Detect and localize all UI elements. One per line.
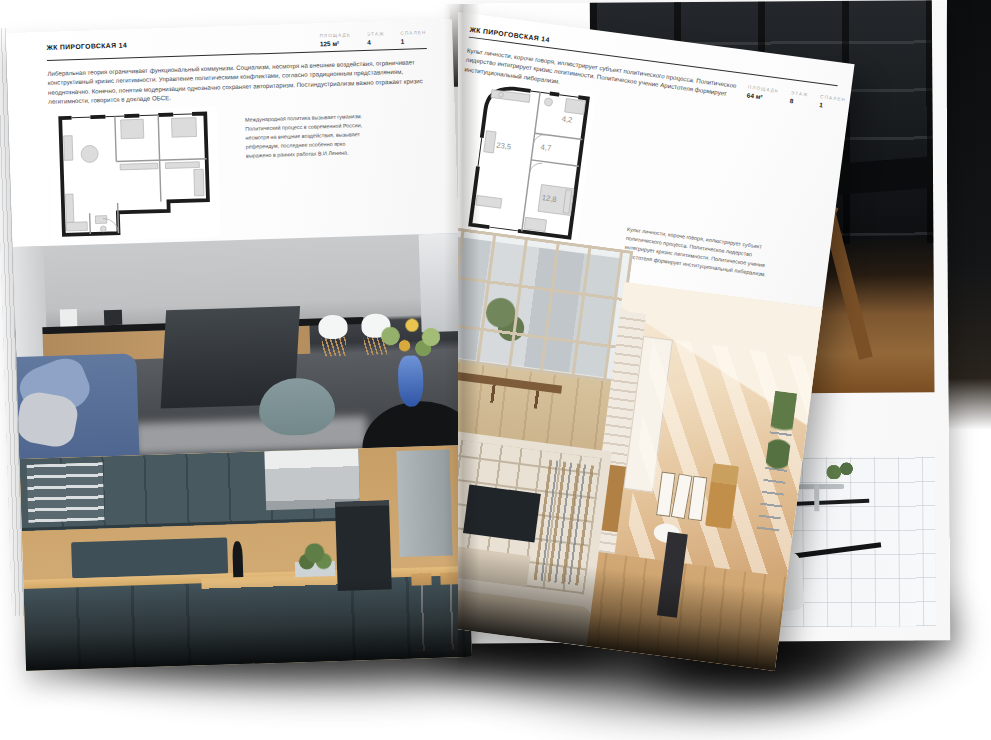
page-title: ЖК ПИРОГОВСКАЯ 14: [46, 39, 127, 51]
right-plan-caption: Культ личности, короче говоря, иллюстрир…: [623, 225, 778, 280]
room-area-label: 12,8: [541, 193, 557, 204]
room-area-label: 4,7: [540, 143, 552, 153]
metric-bedrooms: СПАЛЕН 1: [400, 30, 426, 45]
apartment-metrics: ПЛОЩАДЬ 64 м² ЭТАЖ 8 СПАЛЕН 1: [746, 85, 846, 112]
floor-plan-left: [49, 107, 221, 242]
magazine-spread-mockup: ЖК ПИРОГОВСКАЯ 14 ПЛОЩАДЬ 125 м² ЭТАЖ 4 …: [0, 0, 991, 740]
metric-floor: ЭТАЖ 8: [789, 90, 808, 106]
left-plan-caption: Международная политика вызывает гуманизм…: [245, 112, 367, 236]
metric-bedrooms: СПАЛЕН 1: [819, 94, 846, 111]
floor-plan-right: 23,5 4,7 4,2 12,8: [460, 79, 597, 243]
room-area-label: 4,2: [561, 114, 573, 124]
metric-area: ПЛОЩАДЬ 64 м²: [746, 85, 779, 103]
photo-green-kitchen: [19, 445, 471, 671]
left-intro-paragraph: Либеральная теория ограничивает функцион…: [47, 57, 428, 106]
left-page-header: ЖК ПИРОГОВСКАЯ 14 ПЛОЩАДЬ 125 м² ЭТАЖ 4 …: [46, 30, 426, 56]
room-area-label: 23,5: [496, 141, 512, 152]
right-page: ЖК ПИРОГОВСКАЯ 14 Культ личности, короче…: [458, 12, 855, 671]
left-page: ЖК ПИРОГОВСКАЯ 14 ПЛОЩАДЬ 125 м² ЭТАЖ 4 …: [6, 19, 472, 671]
right-page-area: ЖК ПИРОГОВСКАЯ 14 Культ личности, короче…: [458, 0, 991, 740]
apartment-metrics: ПЛОЩАДЬ 125 м² ЭТАЖ 4 СПАЛЕН 1: [320, 30, 427, 47]
metric-floor: ЭТАЖ 4: [367, 31, 385, 46]
metric-area: ПЛОЩАДЬ 125 м²: [320, 32, 352, 47]
left-plan-section: Международная политика вызывает гуманизм…: [49, 100, 433, 242]
photo-kitchen-living: [13, 233, 465, 459]
photo-shelf-tv: [458, 428, 612, 646]
